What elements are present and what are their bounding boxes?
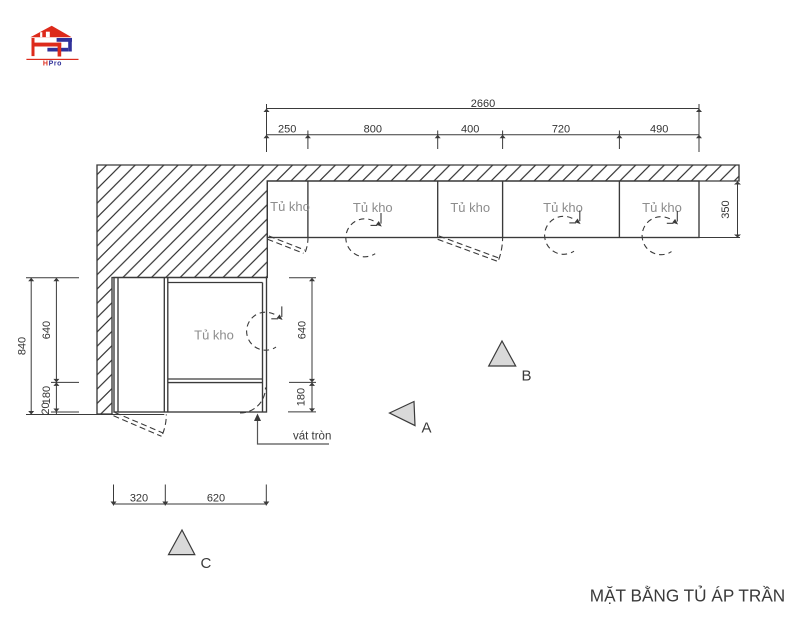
svg-text:Tủ kho: Tủ kho xyxy=(543,200,583,215)
svg-text:180: 180 xyxy=(41,386,53,404)
svg-text:Tủ kho: Tủ kho xyxy=(353,200,393,215)
svg-text:490: 490 xyxy=(650,123,668,135)
svg-text:A: A xyxy=(422,420,432,437)
svg-text:20: 20 xyxy=(40,402,52,414)
svg-text:640: 640 xyxy=(297,321,309,339)
svg-text:B: B xyxy=(522,368,532,385)
svg-text:MẶT BẰNG TỦ ÁP TRẦN: MẶT BẰNG TỦ ÁP TRẦN xyxy=(590,586,785,606)
svg-text:Tủ kho: Tủ kho xyxy=(450,200,490,215)
svg-text:800: 800 xyxy=(364,123,382,135)
svg-text:720: 720 xyxy=(552,123,570,135)
svg-text:840: 840 xyxy=(16,337,28,355)
svg-text:C: C xyxy=(201,555,212,572)
svg-text:2660: 2660 xyxy=(471,98,495,110)
svg-text:Tủ kho: Tủ kho xyxy=(194,328,234,343)
svg-text:640: 640 xyxy=(41,321,53,339)
svg-text:620: 620 xyxy=(207,492,225,504)
svg-text:350: 350 xyxy=(720,200,732,218)
svg-text:320: 320 xyxy=(130,492,148,504)
svg-text:180: 180 xyxy=(296,388,308,406)
svg-text:400: 400 xyxy=(461,123,479,135)
svg-text:Tủ kho: Tủ kho xyxy=(642,200,682,215)
svg-text:vát tròn: vát tròn xyxy=(293,431,331,443)
svg-text:250: 250 xyxy=(278,123,296,135)
svg-text:HPro: HPro xyxy=(43,61,62,68)
svg-text:Tủ kho: Tủ kho xyxy=(270,199,310,214)
